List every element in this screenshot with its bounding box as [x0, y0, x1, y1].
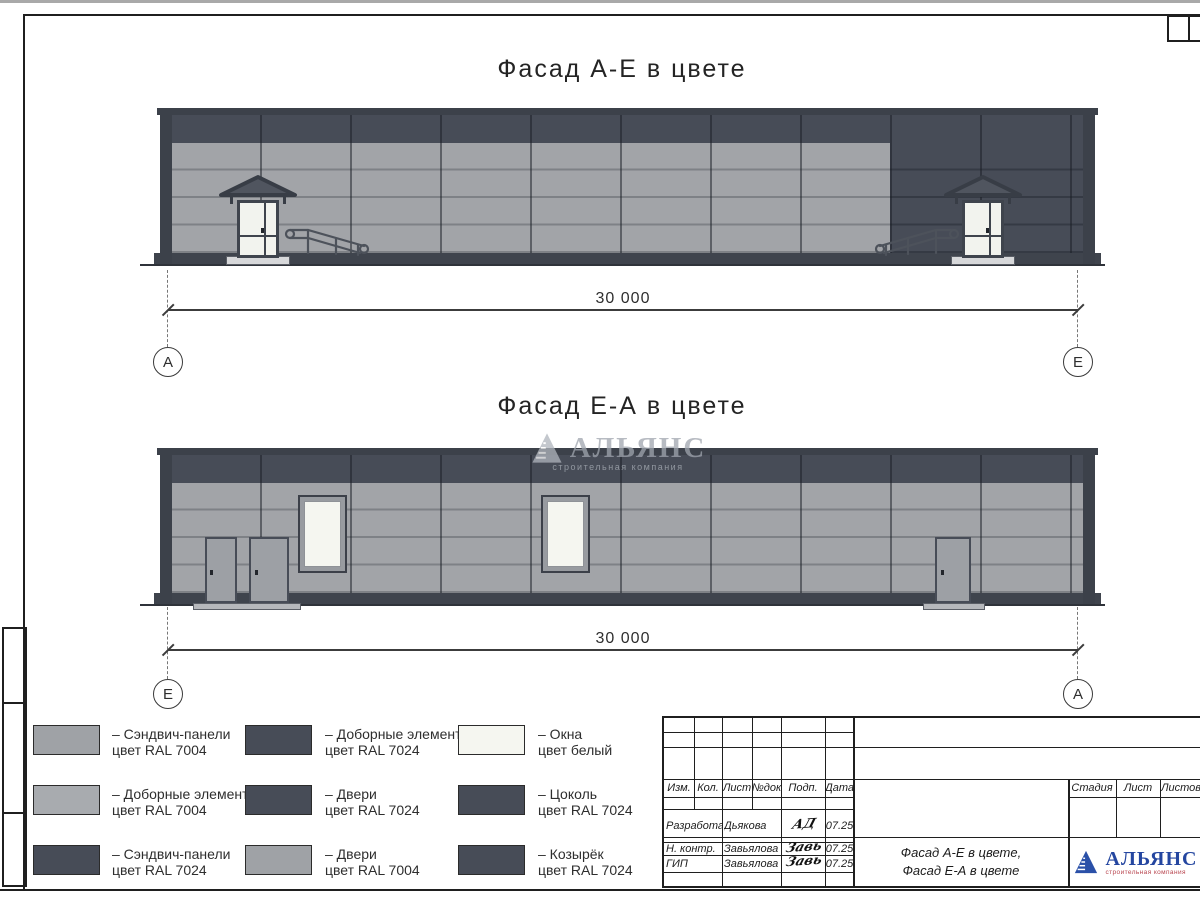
header-stage: Стадия — [1068, 779, 1116, 797]
window — [300, 497, 345, 571]
service-door — [935, 537, 971, 603]
axis-marker-right: А — [1063, 679, 1093, 709]
axis-marker-left: А — [153, 347, 183, 377]
legend-label: – Доборные элементыцвет RAL 7004 — [112, 786, 259, 818]
door-handle — [210, 570, 213, 575]
dimension-line — [168, 309, 1078, 311]
header-ndok: №док — [752, 779, 781, 797]
row-signature: Завь — [781, 852, 827, 872]
sheet-frame-bottom — [0, 889, 1200, 891]
parapet-cap — [157, 108, 1098, 115]
legend-label: – Козырёкцвет RAL 7024 — [538, 846, 633, 878]
logo-name: АЛЬЯНС — [1106, 848, 1198, 871]
titleblock-gridline — [664, 747, 1200, 748]
sheet-corner-table — [1167, 15, 1200, 42]
header-podp: Подп. — [781, 779, 825, 797]
corner-trim-right — [1083, 455, 1095, 605]
service-door — [249, 537, 289, 603]
axis-marker-right: Е — [1063, 347, 1093, 377]
color-swatch — [458, 725, 525, 755]
row-role: Н. контр. — [666, 842, 722, 855]
color-swatch — [245, 785, 312, 815]
color-swatch — [33, 845, 100, 875]
entrance-door-right — [962, 200, 1004, 258]
legend-label: – Сэндвич-панелицвет RAL 7024 — [112, 846, 230, 878]
header-kol: Кол. — [694, 779, 722, 797]
facade-bottom-title: Фасад Е-А в цвете — [387, 392, 857, 421]
sheet-corner-table-divider — [1188, 15, 1190, 40]
legend-label: – Дверицвет RAL 7024 — [325, 786, 420, 818]
row-name: Завьялова — [724, 855, 780, 872]
row-name: Завьялова — [724, 842, 780, 855]
legend-label: – Доборные элементыцвет RAL 7024 — [325, 726, 472, 758]
facade-top-building — [160, 108, 1095, 265]
dimension-value: 30 000 — [523, 630, 723, 648]
row-date: 07.25 — [825, 842, 854, 855]
service-door — [205, 537, 237, 603]
window — [543, 497, 588, 571]
side-stamp-divider — [4, 702, 25, 704]
titleblock-gridline — [781, 718, 782, 886]
door-handle — [941, 570, 944, 575]
header-data: Дата — [825, 779, 854, 797]
title-block: Изм. Кол. Лист №док Подп. Дата Разработа… — [662, 716, 1200, 888]
dimension-extension-line — [167, 607, 168, 679]
header-sheets: Листов — [1160, 779, 1200, 797]
legend-label: – Окнацвет белый — [538, 726, 612, 758]
side-stamp-cells — [2, 627, 27, 887]
logo-subtitle: строительная компания — [1106, 869, 1198, 876]
ramp-railing-icon — [284, 220, 372, 258]
color-swatch — [245, 725, 312, 755]
color-swatch — [33, 785, 100, 815]
corner-trim-left — [160, 455, 172, 605]
ramp-railing-icon — [872, 220, 960, 258]
door-porch — [923, 603, 985, 610]
door-mullion — [989, 203, 991, 255]
row-name: Дьякова — [724, 815, 780, 837]
door-porch — [193, 603, 301, 610]
parapet-cap — [157, 448, 1098, 455]
document-title: Фасад А-Е в цвете, Фасад Е-А в цвете — [854, 837, 1068, 886]
color-swatch — [245, 845, 312, 875]
axis-marker-left: Е — [153, 679, 183, 709]
dimension-value: 30 000 — [523, 290, 723, 308]
facade-bottom-building — [160, 448, 1095, 605]
color-swatch — [458, 785, 525, 815]
header-izm: Изм. — [664, 779, 694, 797]
titleblock-gridline — [1068, 797, 1200, 798]
row-role: ГИП — [666, 855, 722, 872]
header-sheet: Лист — [1116, 779, 1160, 797]
legend-label: – Цокольцвет RAL 7024 — [538, 786, 633, 818]
legend-label: – Сэндвич-панелицвет RAL 7004 — [112, 726, 230, 758]
facade-top-title: Фасад А-Е в цвете — [387, 55, 857, 84]
company-logo: АЛЬЯНС строительная компания — [1068, 837, 1200, 886]
entrance-door-left — [237, 200, 279, 258]
color-swatch — [458, 845, 525, 875]
legend-label: – Дверицвет RAL 7004 — [325, 846, 420, 878]
door-mullion — [264, 203, 266, 255]
sheet-frame-top — [23, 14, 1200, 16]
color-swatch — [33, 725, 100, 755]
canopy-icon — [218, 174, 298, 204]
titleblock-gridline — [722, 718, 723, 886]
side-stamp-divider — [4, 812, 25, 814]
dimension-line — [168, 649, 1078, 651]
corner-trim-left — [160, 115, 172, 265]
drawing-sheet: Фасад А-Е в цвете — [0, 0, 1200, 900]
row-signature: АД — [780, 811, 828, 838]
row-date: 07.25 — [825, 815, 854, 837]
door-handle — [986, 228, 989, 233]
door-handle — [255, 570, 258, 575]
door-rail — [240, 235, 276, 237]
row-role: Разработал — [666, 815, 722, 837]
header-list: Лист — [722, 779, 752, 797]
door-rail — [965, 235, 1001, 237]
corner-trim-right — [1083, 115, 1095, 265]
canopy-icon — [943, 174, 1023, 204]
door-handle — [261, 228, 264, 233]
logo-pyramid-icon — [1073, 849, 1099, 875]
window-edge-strip — [0, 0, 1200, 3]
dimension-extension-line — [1077, 607, 1078, 679]
row-date: 07.25 — [825, 855, 854, 872]
